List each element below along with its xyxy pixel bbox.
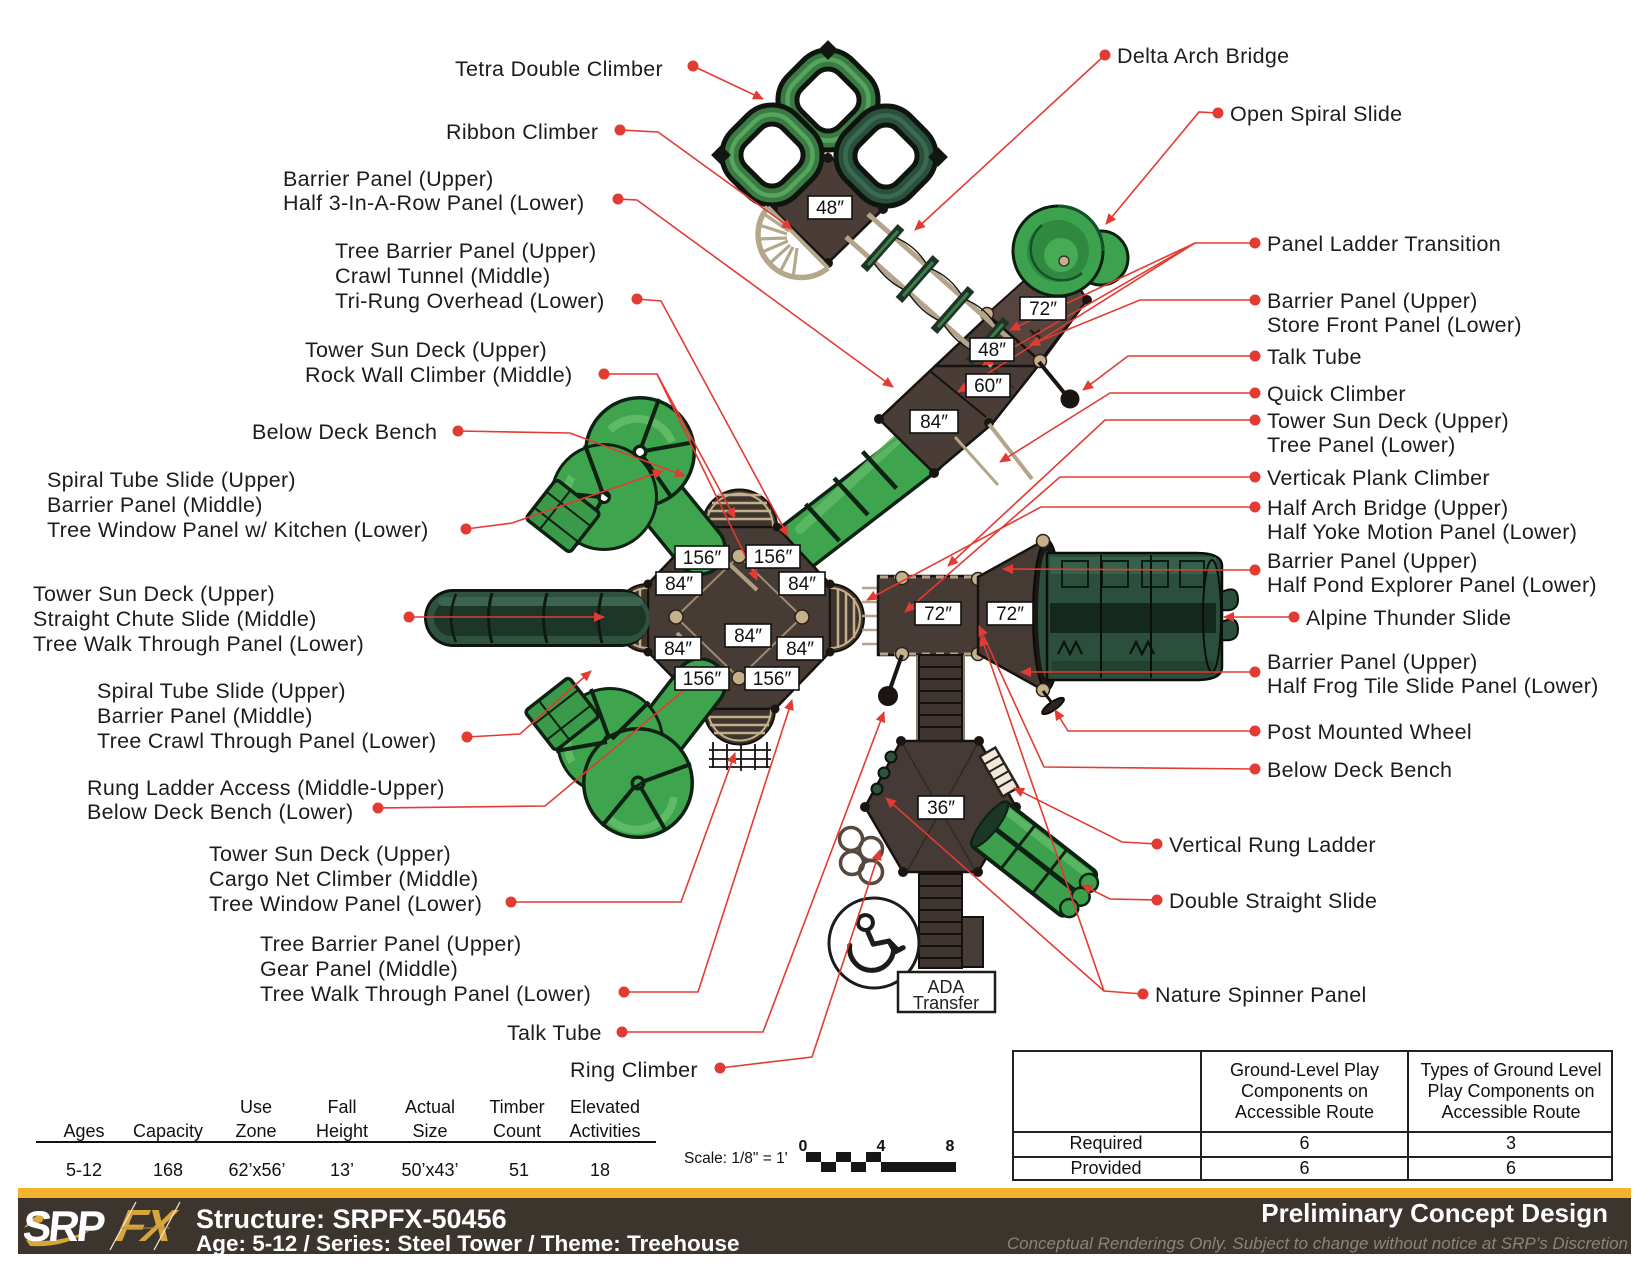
svg-text:Tree Panel (Lower): Tree Panel (Lower)	[1267, 433, 1456, 457]
svg-text:Vertical Rung Ladder: Vertical Rung Ladder	[1169, 833, 1376, 857]
svg-text:Barrier Panel (Upper): Barrier Panel (Upper)	[1267, 289, 1478, 313]
svg-text:Tower Sun Deck (Upper): Tower Sun Deck (Upper)	[209, 842, 451, 866]
svg-text:Tower Sun Deck (Upper): Tower Sun Deck (Upper)	[1267, 409, 1509, 433]
svg-text:Barrier Panel (Middle): Barrier Panel (Middle)	[47, 493, 263, 517]
svg-text:Cargo Net Climber (Middle): Cargo Net Climber (Middle)	[209, 867, 478, 891]
svg-text:84″: 84″	[665, 574, 693, 595]
svg-text:Verticak Plank Climber: Verticak Plank Climber	[1267, 466, 1490, 490]
svg-text:72″: 72″	[996, 604, 1024, 625]
svg-text:84″: 84″	[788, 574, 816, 595]
svg-text:Tree Window Panel (Lower): Tree Window Panel (Lower)	[209, 892, 482, 916]
svg-text:Half Pond Explorer Panel (Lowe: Half Pond Explorer Panel (Lower)	[1267, 573, 1597, 597]
svg-text:60″: 60″	[974, 376, 1002, 397]
svg-text:36″: 36″	[927, 798, 955, 819]
svg-text:Spiral Tube Slide (Upper): Spiral Tube Slide (Upper)	[97, 679, 346, 703]
svg-text:Half 3-In-A-Row Panel (Lower): Half 3-In-A-Row Panel (Lower)	[283, 191, 584, 215]
svg-text:Tower Sun Deck (Upper): Tower Sun Deck (Upper)	[33, 582, 275, 606]
svg-text:SRP: SRP	[24, 1203, 107, 1251]
svg-text:Quick Climber: Quick Climber	[1267, 382, 1406, 406]
svg-text:84″: 84″	[786, 639, 814, 660]
svg-text:Delta Arch Bridge: Delta Arch Bridge	[1117, 44, 1289, 68]
svg-text:Below Deck Bench (Lower): Below Deck Bench (Lower)	[87, 800, 354, 824]
svg-text:Spiral Tube Slide (Upper): Spiral Tube Slide (Upper)	[47, 468, 296, 492]
svg-text:Tree Walk Through Panel (Lower: Tree Walk Through Panel (Lower)	[33, 632, 364, 656]
svg-text:Panel Ladder Transition: Panel Ladder Transition	[1267, 232, 1501, 256]
svg-text:FX: FX	[109, 1201, 184, 1251]
svg-text:Rock Wall Climber (Middle): Rock Wall Climber (Middle)	[305, 363, 572, 387]
svg-text:Tri-Rung Overhead (Lower): Tri-Rung Overhead (Lower)	[335, 289, 605, 313]
svg-text:84″: 84″	[664, 639, 692, 660]
svg-text:Tree Walk Through Panel (Lower: Tree Walk Through Panel (Lower)	[260, 982, 591, 1006]
svg-text:Double Straight Slide: Double Straight Slide	[1169, 889, 1377, 913]
svg-text:84″: 84″	[734, 626, 762, 647]
svg-text:Talk Tube: Talk Tube	[1267, 345, 1362, 369]
svg-text:72″: 72″	[1029, 299, 1057, 320]
svg-text:Tree Barrier Panel (Upper): Tree Barrier Panel (Upper)	[260, 932, 522, 956]
svg-text:Barrier Panel (Upper): Barrier Panel (Upper)	[1267, 650, 1478, 674]
svg-text:156″: 156″	[683, 669, 722, 690]
svg-text:Ring Climber: Ring Climber	[570, 1058, 698, 1082]
svg-text:Alpine Thunder Slide: Alpine Thunder Slide	[1306, 606, 1511, 630]
svg-text:Post Mounted Wheel: Post Mounted Wheel	[1267, 720, 1472, 744]
svg-text:Talk Tube: Talk Tube	[507, 1021, 602, 1045]
svg-text:Below Deck Bench: Below Deck Bench	[252, 420, 437, 444]
svg-text:Barrier Panel (Upper): Barrier Panel (Upper)	[1267, 549, 1478, 573]
svg-text:Tree Crawl Through Panel (Lowe: Tree Crawl Through Panel (Lower)	[97, 729, 436, 753]
svg-text:Store Front Panel (Lower): Store Front Panel (Lower)	[1267, 313, 1522, 337]
svg-text:156″: 156″	[683, 548, 722, 569]
svg-text:Transfer: Transfer	[913, 993, 979, 1013]
svg-text:156″: 156″	[753, 669, 792, 690]
svg-text:Nature Spinner Panel: Nature Spinner Panel	[1155, 983, 1367, 1007]
svg-text:Half Yoke Motion Panel (Lower): Half Yoke Motion Panel (Lower)	[1267, 520, 1577, 544]
svg-text:Gear Panel (Middle): Gear Panel (Middle)	[260, 957, 458, 981]
svg-text:Tetra Double Climber: Tetra Double Climber	[455, 57, 663, 81]
svg-text:Ribbon Climber: Ribbon Climber	[446, 120, 598, 144]
svg-text:Half Arch Bridge (Upper): Half Arch Bridge (Upper)	[1267, 496, 1508, 520]
svg-text:Open Spiral Slide: Open Spiral Slide	[1230, 102, 1402, 126]
svg-text:Tree Window Panel w/ Kitchen (: Tree Window Panel w/ Kitchen (Lower)	[47, 518, 429, 542]
svg-text:Barrier Panel (Middle): Barrier Panel (Middle)	[97, 704, 313, 728]
svg-text:156″: 156″	[754, 547, 793, 568]
svg-text:72″: 72″	[924, 604, 952, 625]
svg-text:Rung Ladder Access (Middle-Upp: Rung Ladder Access (Middle-Upper)	[87, 776, 445, 800]
svg-text:Crawl Tunnel (Middle): Crawl Tunnel (Middle)	[335, 264, 550, 288]
svg-text:Tree Barrier Panel (Upper): Tree Barrier Panel (Upper)	[335, 239, 597, 263]
svg-text:Tower Sun Deck (Upper): Tower Sun Deck (Upper)	[305, 338, 547, 362]
svg-text:Straight Chute Slide (Middle): Straight Chute Slide (Middle)	[33, 607, 317, 631]
svg-text:48″: 48″	[816, 198, 844, 219]
svg-text:Below Deck Bench: Below Deck Bench	[1267, 758, 1452, 782]
svg-text:Half Frog Tile Slide Panel (Lo: Half Frog Tile Slide Panel (Lower)	[1267, 674, 1599, 698]
svg-text:48″: 48″	[978, 340, 1006, 361]
svg-text:84″: 84″	[920, 412, 948, 433]
svg-text:Barrier Panel (Upper): Barrier Panel (Upper)	[283, 167, 494, 191]
